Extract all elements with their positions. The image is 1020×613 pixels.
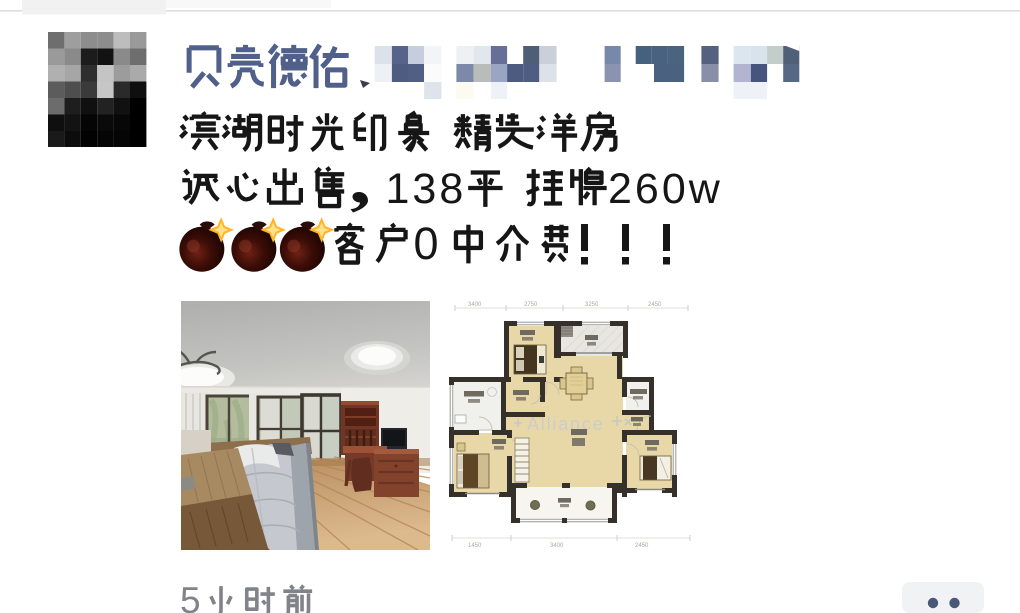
- svg-text:138: 138: [386, 165, 467, 213]
- svg-text:2750: 2750: [524, 302, 538, 308]
- svg-text:2450: 2450: [635, 543, 649, 549]
- svg-text:260w: 260w: [608, 165, 723, 213]
- svg-text:3400: 3400: [550, 543, 564, 549]
- svg-text:5: 5: [180, 580, 201, 613]
- svg-text:0: 0: [414, 218, 442, 269]
- svg-text:3400: 3400: [468, 302, 482, 308]
- svg-text:1450: 1450: [468, 543, 482, 549]
- svg-text:3250: 3250: [585, 302, 599, 308]
- svg-text:2450: 2450: [648, 302, 662, 308]
